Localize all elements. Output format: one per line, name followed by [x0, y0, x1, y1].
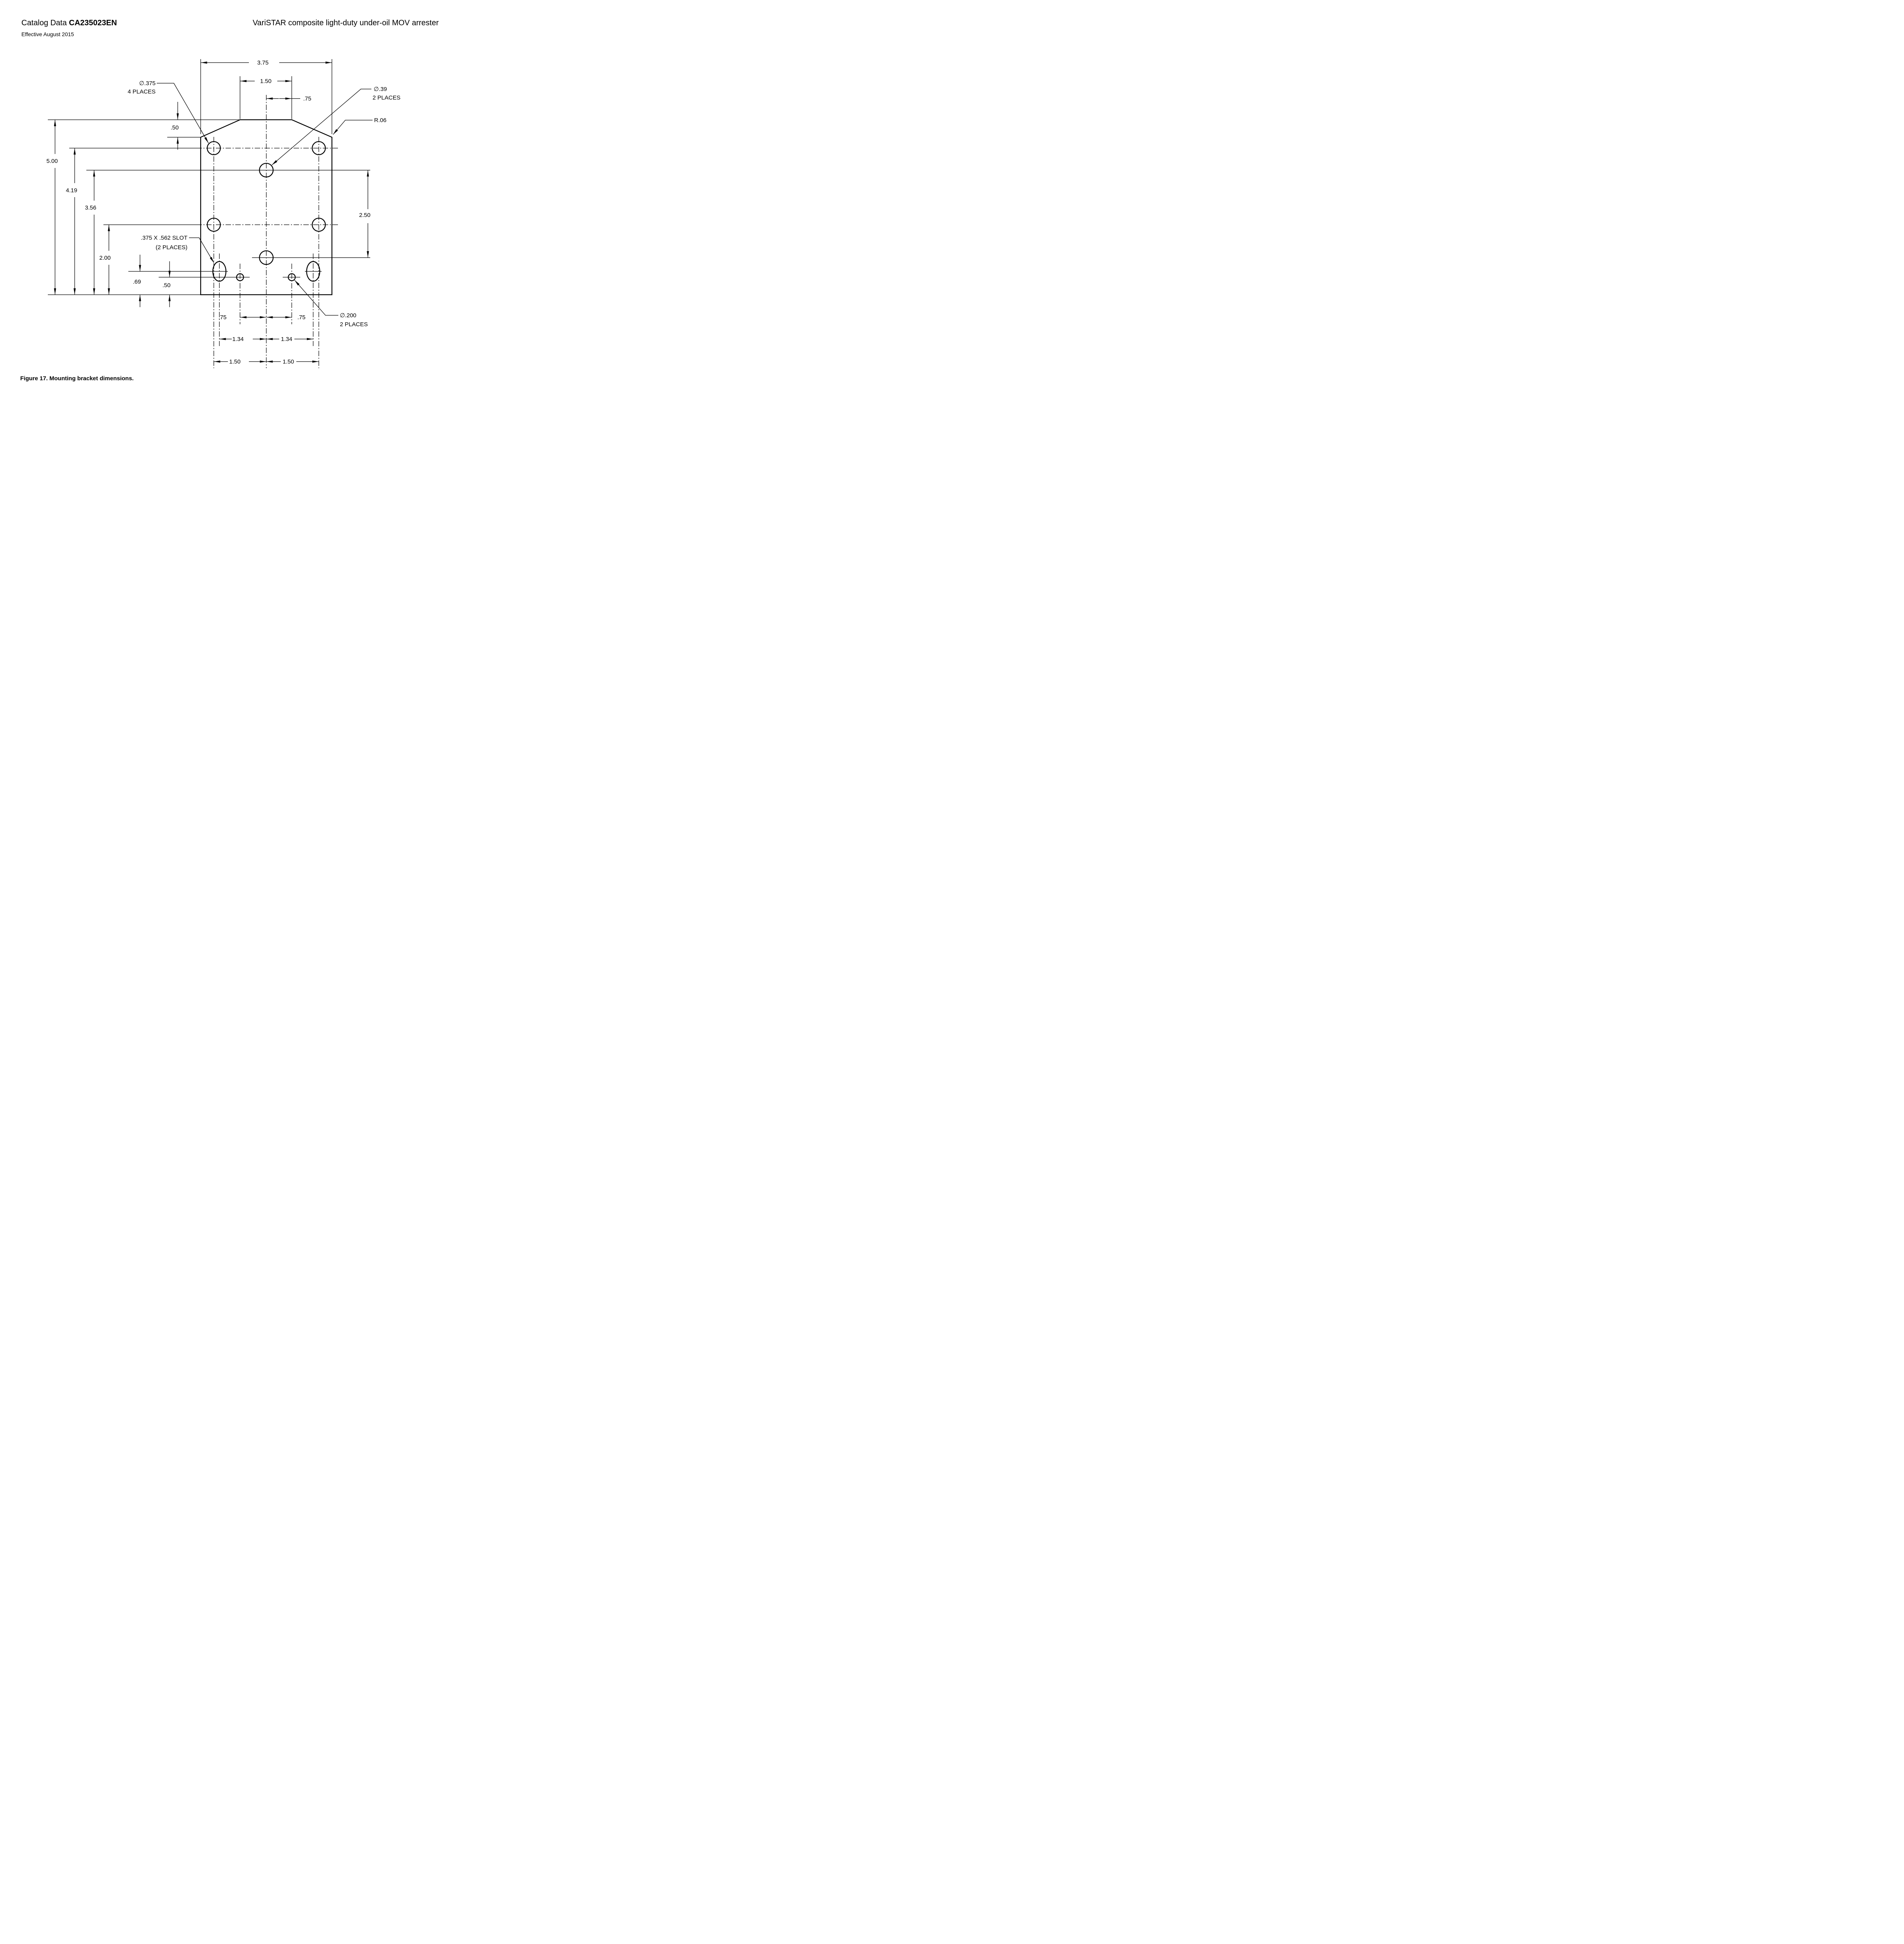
dim-corner-offset-right: 1.50	[283, 358, 294, 365]
dim-overall-width: 3.75	[257, 59, 268, 66]
dim-small-offset-right: .75	[297, 314, 306, 321]
dimension-lines	[55, 63, 368, 362]
dim-small-offset-left: .75	[219, 314, 227, 321]
leader-slot	[189, 238, 214, 263]
callout-corner-holes-places: 4 PLACES	[128, 89, 156, 95]
leader-corner-radius	[333, 120, 373, 135]
callout-slot-places: (2 PLACES)	[156, 244, 187, 251]
dim-center-hole: 3.56	[85, 205, 96, 211]
callout-center-holes-dia: ∅.39	[374, 86, 387, 93]
callout-corner-holes-dia: ∅.375	[139, 80, 156, 87]
dim-corner-offset-left: 1.50	[229, 358, 240, 365]
dim-upper-holes: 4.19	[66, 187, 77, 194]
callout-center-holes-places: 2 PLACES	[373, 94, 401, 101]
callout-small-holes-dia: ∅.200	[340, 312, 356, 319]
leader-lines	[157, 83, 373, 315]
dim-small-holes-bottom: .50	[163, 282, 171, 289]
dim-slot-offset-right: 1.34	[281, 336, 292, 343]
callout-corner-radius: R.06	[374, 117, 387, 124]
dim-mid-holes: 2.00	[99, 255, 110, 261]
dim-chamfer-depth: .50	[171, 124, 179, 131]
figure-caption: Figure 17. Mounting bracket dimensions.	[20, 375, 134, 382]
mounting-bracket-drawing: 3.75 1.50 .75 5.00 4.19 3.56 2.00 .50 .6…	[0, 0, 476, 616]
callout-texts: ∅.375 4 PLACES ∅.39 2 PLACES R.06 .375 X…	[128, 80, 400, 328]
dim-flat-top-width: 1.50	[260, 78, 271, 85]
catalog-page: Catalog Data CA235023EN Effective August…	[0, 0, 476, 616]
dim-slot-bottom: .69	[133, 279, 141, 285]
dim-slot-offset-left: 1.34	[232, 336, 243, 343]
callout-slot-size: .375 X .562 SLOT	[141, 235, 187, 241]
dim-flat-top-half: .75	[303, 96, 311, 102]
dimension-texts: 3.75 1.50 .75 5.00 4.19 3.56 2.00 .50 .6…	[46, 59, 370, 365]
extension-lines	[48, 59, 370, 295]
dim-center-holes-spacing: 2.50	[359, 212, 370, 219]
dim-overall-height: 5.00	[46, 158, 58, 164]
callout-small-holes-places: 2 PLACES	[340, 321, 368, 328]
